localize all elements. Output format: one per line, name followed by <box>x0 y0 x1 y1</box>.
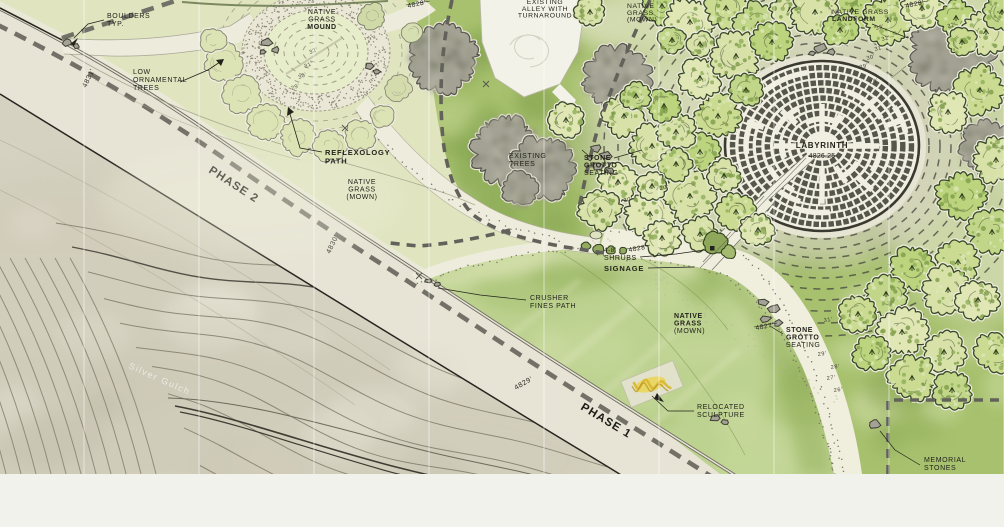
svg-text:NATIVE GRASS: NATIVE GRASS <box>832 9 889 16</box>
svg-text:MEMORIAL: MEMORIAL <box>924 457 966 464</box>
svg-text:31': 31' <box>823 317 833 324</box>
svg-text:28': 28' <box>830 364 840 371</box>
svg-text:4-8': 4-8' <box>604 247 617 254</box>
svg-text:TREES: TREES <box>509 161 535 168</box>
svg-text:STONE: STONE <box>584 155 611 162</box>
svg-text:SEATING: SEATING <box>786 342 820 349</box>
svg-text:SIGNAGE: SIGNAGE <box>604 264 644 273</box>
svg-text:TURNAROUND: TURNAROUND <box>518 13 572 20</box>
svg-text:LANDFORM: LANDFORM <box>832 16 876 23</box>
svg-text:29': 29' <box>817 351 827 358</box>
svg-text:TREES: TREES <box>133 85 159 92</box>
svg-text:BOULDERS: BOULDERS <box>107 13 150 20</box>
svg-text:GRASS: GRASS <box>308 17 336 24</box>
svg-text:SHRUBS: SHRUBS <box>604 255 637 262</box>
svg-text:NATIVE: NATIVE <box>348 179 376 186</box>
svg-text:EXISTING: EXISTING <box>509 153 546 160</box>
svg-text:GROTTO: GROTTO <box>786 335 819 342</box>
svg-text:LOW: LOW <box>133 69 151 76</box>
svg-text:PATH: PATH <box>325 157 348 166</box>
svg-text:MOUND: MOUND <box>307 24 336 31</box>
svg-text:4826.25: 4826.25 <box>809 153 836 160</box>
svg-text:26': 26' <box>833 387 843 394</box>
svg-text:STONE: STONE <box>786 327 813 334</box>
svg-text:SEATING: SEATING <box>584 170 618 177</box>
svg-text:FINES PATH: FINES PATH <box>530 303 576 310</box>
svg-text:GRASS: GRASS <box>674 321 702 328</box>
svg-text:GRASS: GRASS <box>348 187 376 194</box>
svg-text:(MOWN): (MOWN) <box>674 328 705 335</box>
svg-text:(MOWN): (MOWN) <box>627 17 657 24</box>
svg-text:NATIVE: NATIVE <box>308 9 336 16</box>
svg-text:NATIVE: NATIVE <box>674 313 703 320</box>
svg-text:GROTTO: GROTTO <box>584 163 617 170</box>
svg-text:RELOCATED: RELOCATED <box>697 404 745 411</box>
svg-text:STONES: STONES <box>924 465 956 472</box>
svg-text:27': 27' <box>826 375 836 382</box>
svg-text:ORNAMENTAL: ORNAMENTAL <box>133 77 187 84</box>
svg-text:TYP.: TYP. <box>107 21 124 28</box>
svg-text:CRUSHER: CRUSHER <box>530 295 569 302</box>
svg-text:SCULPTURE: SCULPTURE <box>697 412 745 419</box>
svg-text:LABYRINTH: LABYRINTH <box>796 141 849 150</box>
svg-text:(MOWN): (MOWN) <box>346 194 377 201</box>
